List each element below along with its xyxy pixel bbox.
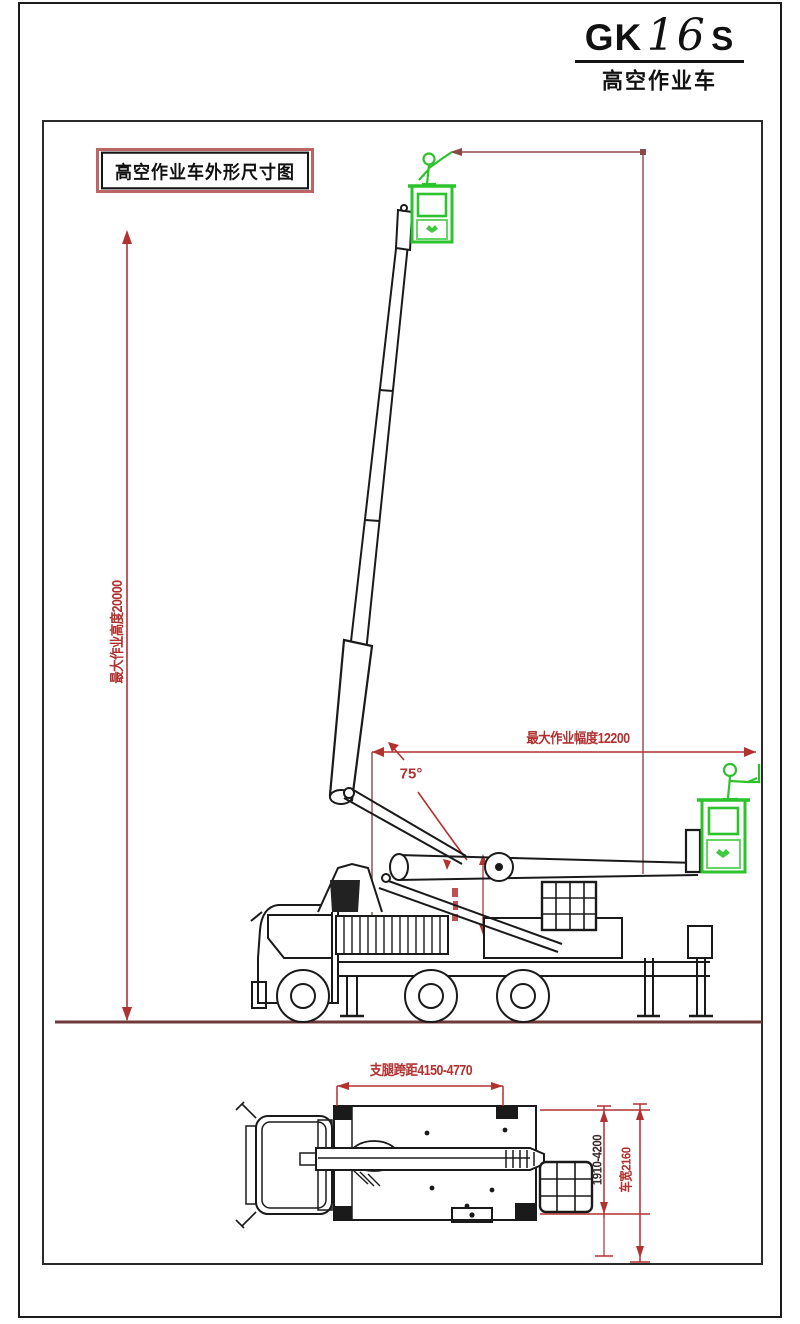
plan-view-truck bbox=[236, 1102, 592, 1228]
operator-figure-right bbox=[723, 764, 759, 799]
basket-right bbox=[697, 764, 759, 872]
operator-figure-top bbox=[419, 152, 452, 184]
dimension-lines bbox=[122, 148, 756, 1021]
dim-vehicle-width: 车宽2160 bbox=[619, 1147, 632, 1192]
side-view-truck bbox=[251, 864, 713, 1022]
drawing-sheet: GK 16 S 高空作业车 高空作业车外形尺寸图 bbox=[0, 0, 800, 1324]
basket-top bbox=[408, 152, 456, 242]
dim-outrigger-span: 支腿跨距4150-4770 bbox=[370, 1063, 472, 1077]
dim-boom-angle: 75° bbox=[400, 767, 423, 782]
raised-boom bbox=[330, 205, 466, 864]
dim-max-working-height: 最大作业高度20000 bbox=[110, 580, 124, 683]
dim-outrigger-extension-width: 1910-4200 bbox=[590, 1135, 603, 1185]
dim-max-working-reach: 最大作业幅度12200 bbox=[526, 731, 629, 745]
